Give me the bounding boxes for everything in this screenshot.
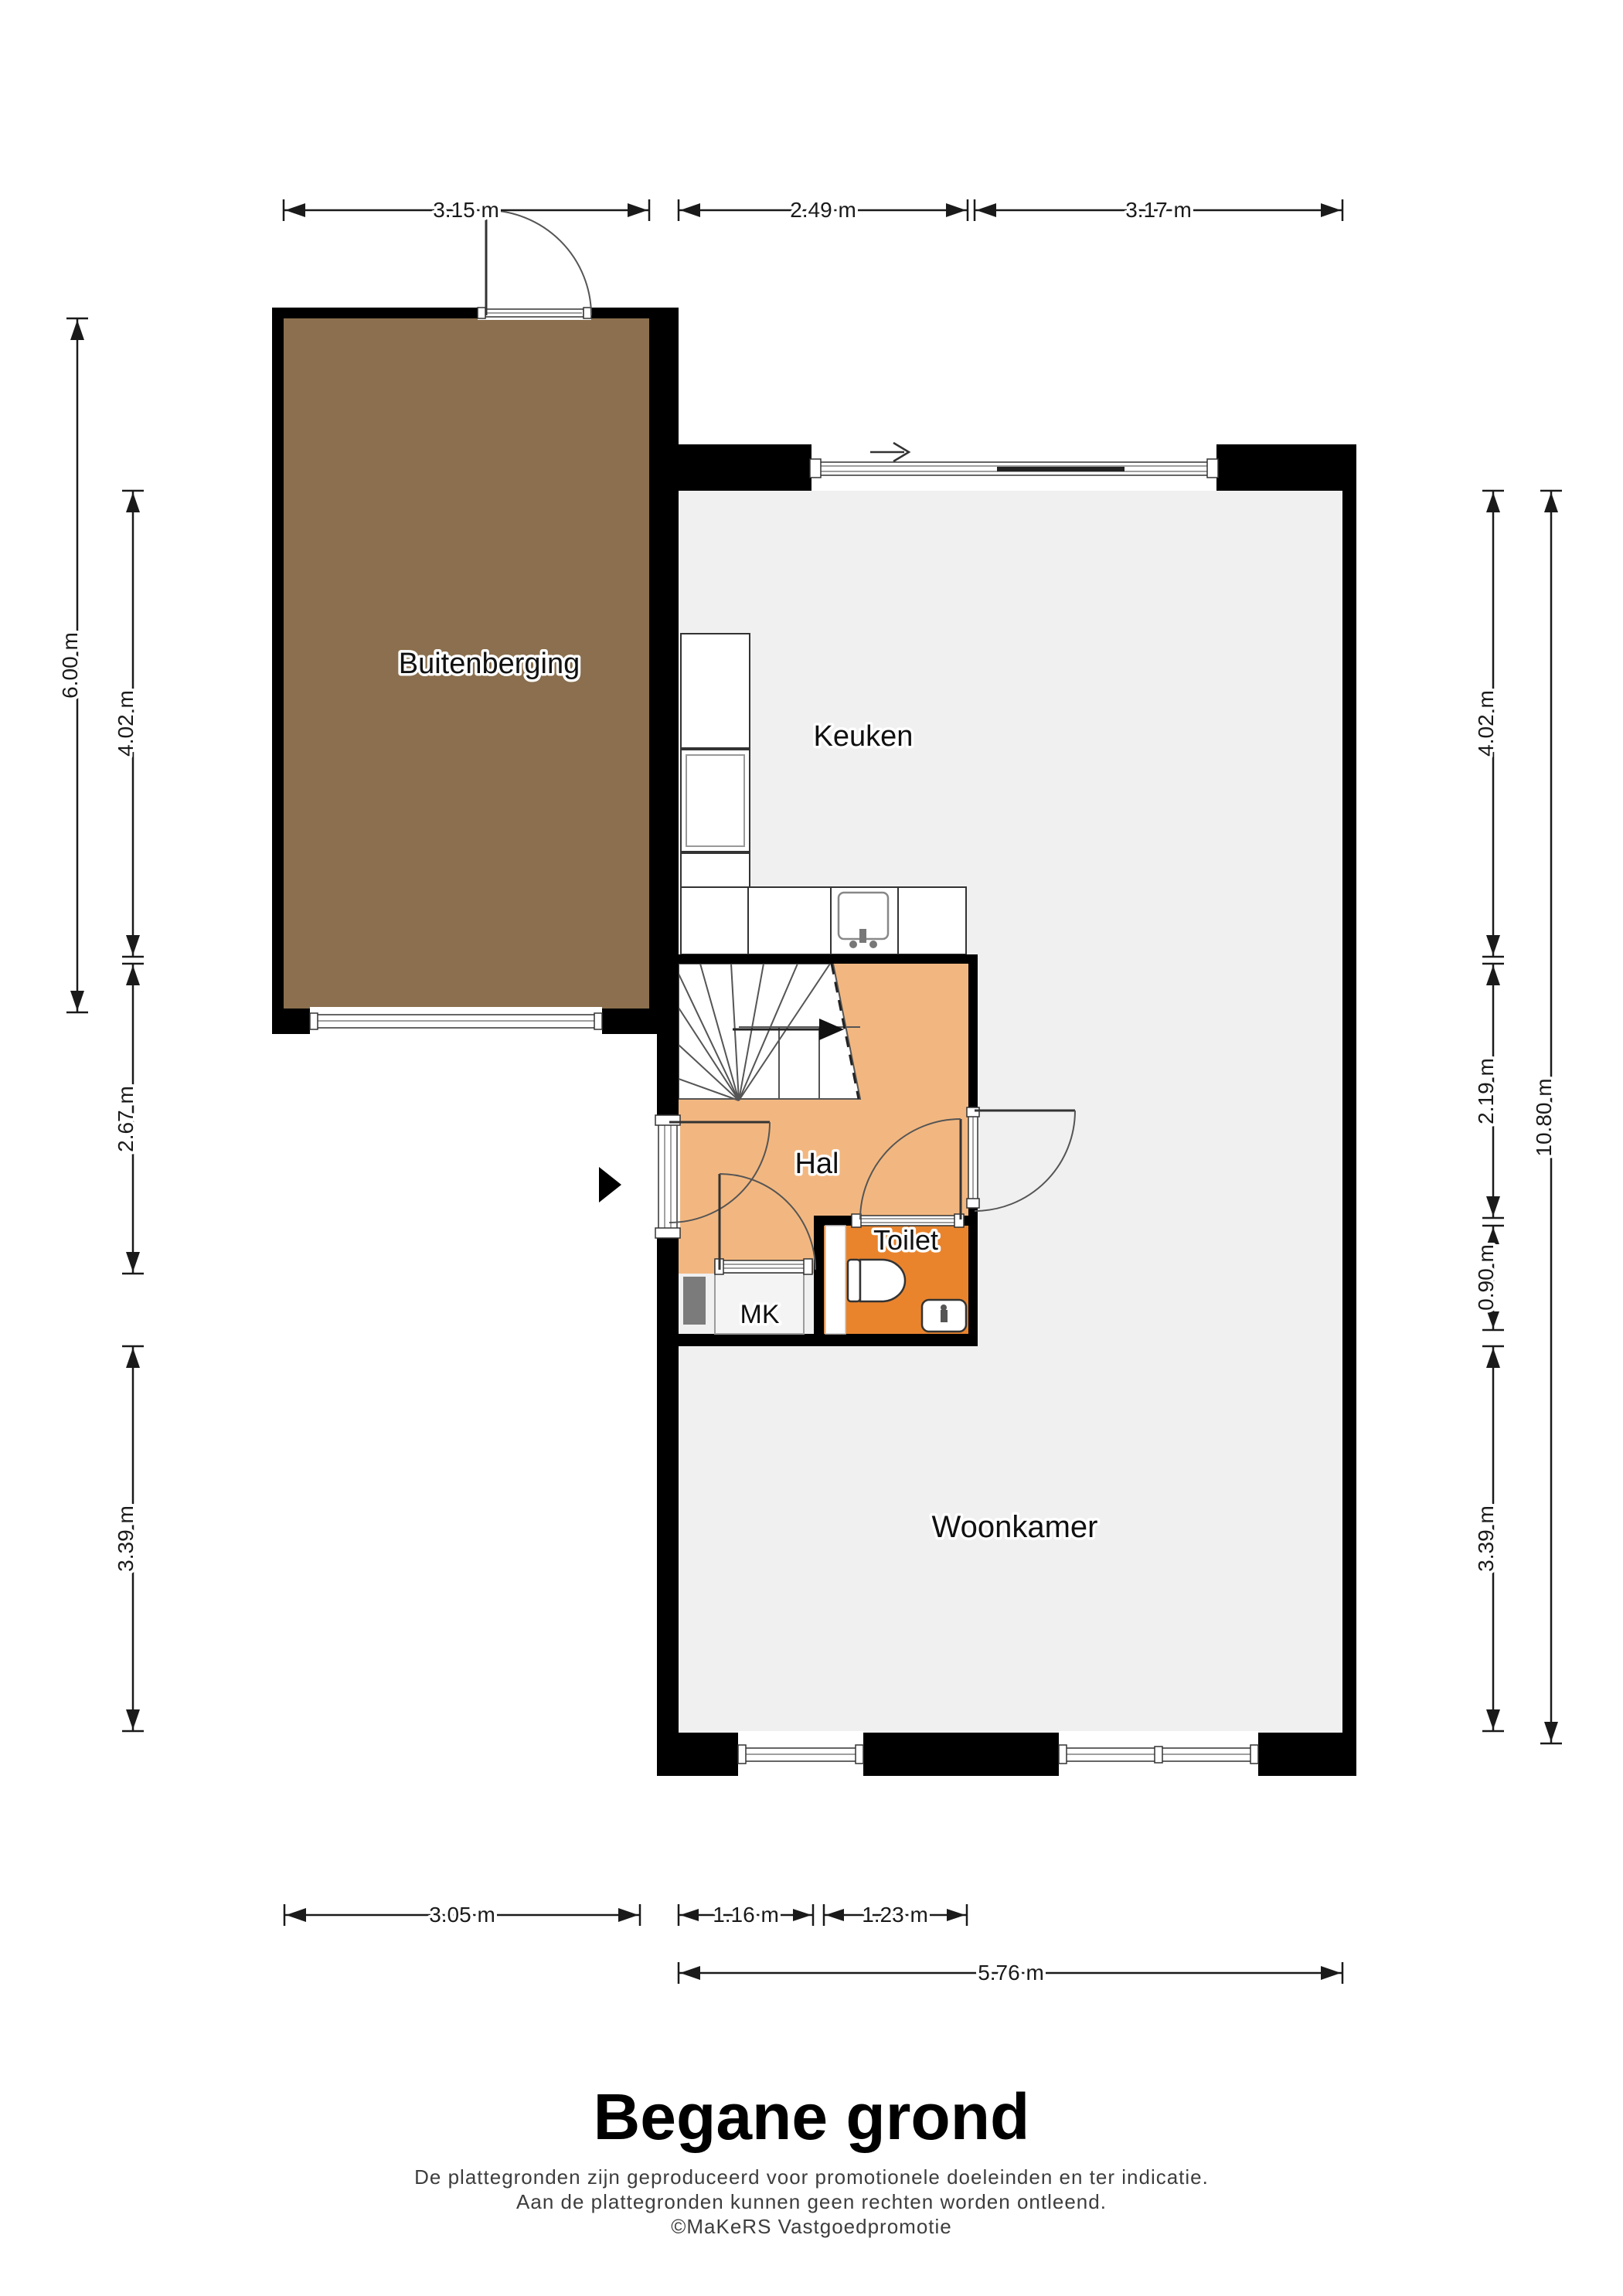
dim-left-3: 2.67 m [114,964,144,1274]
dim-bottom-2: 1.16 m [679,1903,813,1927]
dim-right-4: 3.39 m [1474,1346,1504,1731]
svg-text:3.15 m: 3.15 m [433,198,499,222]
svg-text:10.80 m: 10.80 m [1532,1078,1556,1156]
sliding-panel [997,467,1125,471]
cabinet [681,853,750,887]
svg-text:1.16 m: 1.16 m [713,1903,779,1927]
svg-text:4.02 m: 4.02 m [114,690,138,757]
counter [898,887,966,954]
toilet-label: Toilet [873,1224,938,1256]
dim-right-3: 0.90 m [1474,1226,1504,1330]
kitchen-label: Keuken [814,720,914,753]
dim-bottom-4: 5.76 m [679,1961,1342,1985]
hall-east-wall-upper [968,964,978,1107]
svg-text:2.67 m: 2.67 m [114,1086,138,1152]
house-east-wall [1342,444,1356,1776]
sliding-door [810,443,1218,491]
tall-cabinet [681,634,750,748]
svg-text:3.17 m: 3.17 m [1125,198,1192,222]
storage-label: Buitenberging [399,648,580,680]
dim-top-2: 2.49 m [679,198,968,222]
dim-bottom-1: 3.05 m [284,1903,640,1927]
toilet-north-wall-stub2 [964,1216,978,1226]
meter-cabinet [683,1277,706,1325]
house-west-wall [657,444,679,1776]
dim-bottom-3: 1.23 m [824,1903,967,1927]
toilet-sink-icon [922,1300,966,1332]
svg-text:6.00 m: 6.00 m [58,632,82,699]
hall-south-wall [657,1334,978,1346]
kitchen-sink-icon [839,893,888,948]
svg-text:5.76 m: 5.76 m [978,1961,1044,1985]
svg-text:3.39 m: 3.39 m [114,1505,138,1572]
svg-text:0.90 m: 0.90 m [1474,1244,1498,1311]
page-title: Begane grond [594,2080,1030,2153]
svg-text:4.02 m: 4.02 m [1474,690,1498,757]
living-room-window-right [1059,1731,1258,1776]
appliance-cabinet [681,750,750,852]
dim-left-1: 6.00 m [58,318,88,1012]
entrance-arrow-icon [599,1167,621,1202]
duct-shaft [825,1226,846,1334]
hall-label: Hal [794,1148,839,1180]
dim-right-2: 2.19 m [1474,964,1504,1218]
mk-label: MK [740,1300,780,1329]
storage-west-wall [272,308,284,1034]
dim-left-4: 3.39 m [114,1346,144,1731]
disclaimer-line-2: Aan de plattegronden kunnen geen rechten… [516,2190,1107,2213]
living-room-label: Woonkamer [932,1510,1098,1544]
toilet-west-wall [814,1216,824,1346]
storage-north-wall [272,308,679,318]
floorplan-page: Buitenberging Keuken Hal Toilet MK Woonk… [0,0,1623,2296]
hall-north-wall [679,954,978,964]
svg-text:3.05 m: 3.05 m [429,1903,495,1927]
toilet-north-wall-stub [824,1216,852,1226]
storage-entry-door [478,210,591,320]
dim-right-1: 4.02 m [1474,491,1504,957]
counter [748,887,831,954]
disclaimer-line-1: De plattegronden zijn geproduceerd voor … [414,2165,1209,2189]
toilet-fixture-icon [848,1260,905,1301]
dim-left-2: 4.02 m [114,491,144,957]
living-room-window-left [738,1731,863,1776]
svg-text:1.23 m: 1.23 m [862,1903,928,1927]
floorplan-canvas: Buitenberging Keuken Hal Toilet MK Woonk… [0,0,1623,2296]
corner-counter [681,887,748,954]
dim-top-1: 3.15 m [284,198,649,222]
storage-window [310,1007,602,1036]
credit-line: ©MaKeRS Vastgoedpromotie [671,2215,952,2238]
dim-top-3: 3.17 m [975,198,1342,222]
dim-right-5: 10.80 m [1532,491,1562,1743]
staircase [679,964,860,1100]
hall-east-wall-lower [968,1208,978,1346]
svg-text:3.39 m: 3.39 m [1474,1505,1498,1572]
svg-text:2.49 m: 2.49 m [790,198,856,222]
svg-text:2.19 m: 2.19 m [1474,1058,1498,1124]
